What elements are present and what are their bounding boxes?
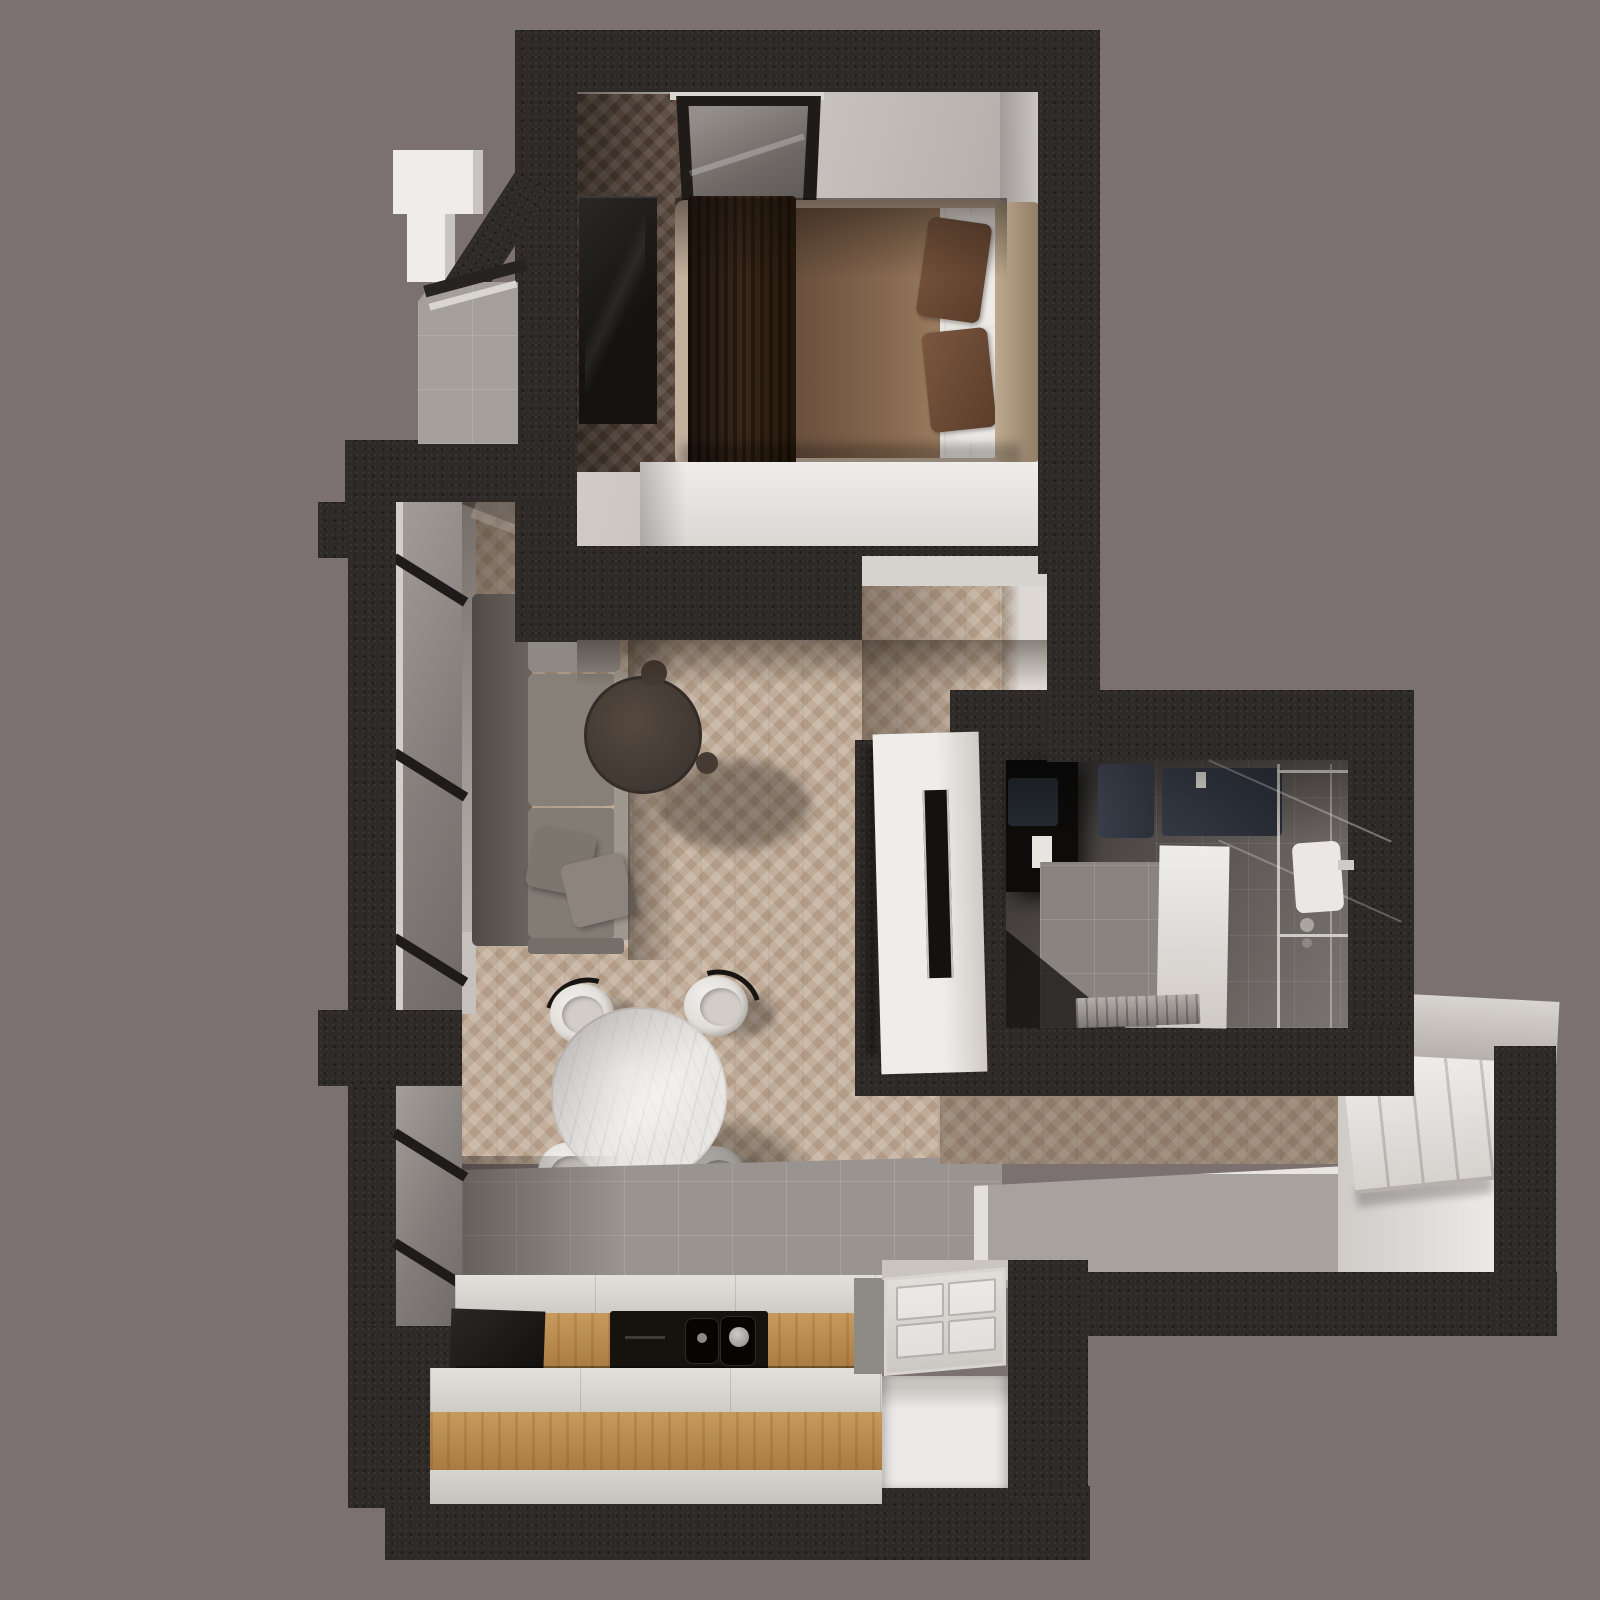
island-worktop-white bbox=[430, 1368, 882, 1412]
coffee-table-knob bbox=[696, 752, 718, 774]
hall-wall-right bbox=[1494, 1046, 1556, 1336]
hallway-herringbone-floor bbox=[940, 1096, 1404, 1164]
apartment-floor-plan-3d-render bbox=[0, 0, 1600, 1600]
window-glass-lower bbox=[396, 1086, 462, 1326]
entry-niche-white bbox=[882, 1376, 1008, 1488]
kitchen-wall-bottom bbox=[385, 1498, 885, 1560]
shower-glass-rail-v bbox=[1277, 764, 1280, 1028]
cooktop-control-line bbox=[625, 1336, 665, 1339]
bed-headboard bbox=[995, 202, 1041, 462]
bed-pillow-brown bbox=[921, 327, 997, 433]
hall-wall-bottom bbox=[1085, 1272, 1557, 1336]
parapet-shade-edge bbox=[473, 150, 483, 214]
bedroom-wall-bottom bbox=[577, 552, 862, 640]
bathroom-vanity-unit bbox=[1008, 778, 1058, 826]
chair-seat bbox=[700, 988, 742, 1026]
bed-throw-dark bbox=[688, 196, 796, 480]
bedroom-wall-top bbox=[515, 30, 1100, 92]
balcony-parapet-white bbox=[393, 150, 483, 214]
island-plinth bbox=[430, 1470, 882, 1504]
entry-wall-stub bbox=[1008, 1260, 1088, 1500]
bedroom bbox=[577, 92, 1038, 555]
shower-fitting bbox=[1300, 918, 1314, 932]
sofa-backrest bbox=[472, 594, 532, 946]
shower-fitting bbox=[1302, 938, 1312, 948]
bathroom-wall-bottom bbox=[950, 1028, 1414, 1096]
door-panel bbox=[948, 1316, 996, 1354]
towel-radiator bbox=[1292, 840, 1345, 913]
door-panel bbox=[896, 1321, 944, 1359]
faucet-dial-large bbox=[729, 1327, 749, 1347]
coffee-table-knob bbox=[641, 660, 667, 686]
bathroom-wall-top bbox=[950, 690, 1412, 760]
shower-glass-rail-h bbox=[1277, 934, 1348, 937]
island-cabinet-wood-front bbox=[430, 1412, 882, 1470]
radiator-wall-arm bbox=[1338, 860, 1354, 870]
coffee-table bbox=[584, 676, 702, 794]
vanity-white-detail bbox=[1196, 772, 1206, 788]
shower-drain-strip bbox=[1076, 994, 1201, 1028]
window-pier bbox=[318, 1010, 462, 1086]
sofa-armrest bbox=[528, 938, 624, 954]
niche-white-band bbox=[862, 556, 1047, 586]
bathroom-vanity-unit bbox=[1162, 768, 1282, 836]
door-panel bbox=[948, 1278, 996, 1316]
kitchen-counter-island bbox=[430, 1368, 882, 1504]
bathroom-vanity-unit bbox=[1098, 764, 1154, 838]
entry-door bbox=[884, 1267, 1006, 1376]
wall-mounted-tv bbox=[923, 790, 954, 979]
bedroom-wardrobe bbox=[579, 196, 657, 424]
dining-table bbox=[551, 1007, 727, 1183]
bedroom-wall-left bbox=[515, 30, 577, 642]
faucet-dial-small bbox=[697, 1333, 707, 1343]
bathroom-interior bbox=[1006, 760, 1348, 1028]
wall-stub-left bbox=[318, 502, 350, 558]
counter-worktop-white bbox=[455, 1275, 882, 1313]
corridor-wall-connector bbox=[1047, 552, 1100, 762]
shower-glass-rail-h bbox=[1277, 770, 1348, 773]
bedroom-foot-bench bbox=[640, 462, 1038, 548]
bedroom-wall-right bbox=[1038, 30, 1100, 574]
door-panel bbox=[896, 1283, 944, 1321]
